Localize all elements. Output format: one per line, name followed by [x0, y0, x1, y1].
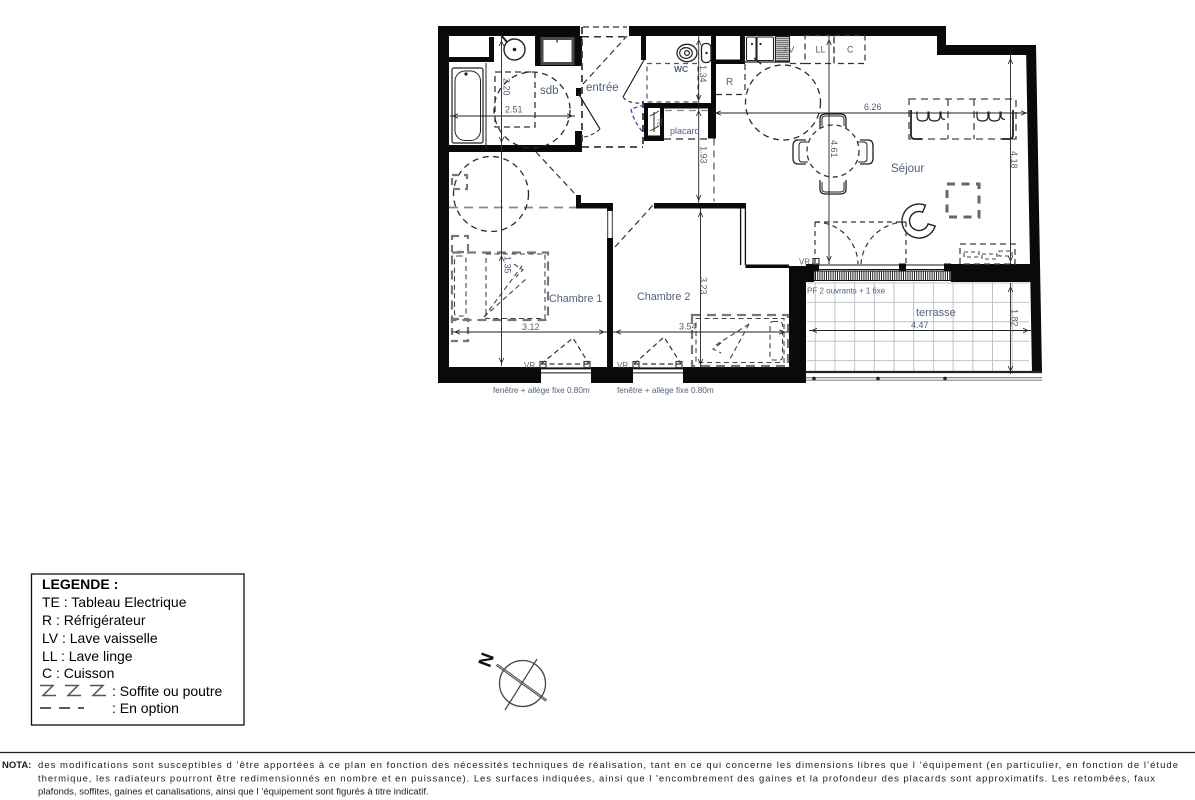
svg-text:1.82: 1.82 [1010, 309, 1020, 327]
svg-text:terrasse: terrasse [916, 307, 956, 319]
svg-text:3.12: 3.12 [522, 322, 540, 332]
svg-text:LV : Lave vaisselle: LV : Lave vaisselle [42, 630, 158, 646]
svg-text:fenêtre + allège fixe 0.80m: fenêtre + allège fixe 0.80m [617, 386, 714, 395]
svg-text:3.54: 3.54 [679, 322, 697, 332]
svg-text:VR: VR [799, 258, 810, 267]
svg-text:: En option: : En option [112, 700, 179, 716]
svg-text:4.61: 4.61 [829, 140, 839, 158]
svg-text:des modifications sont suscept: des modifications sont susceptibles d ’ê… [38, 760, 1178, 771]
svg-text:VR: VR [617, 361, 628, 370]
svg-text:Chambre 2: Chambre 2 [637, 291, 690, 303]
svg-text:4.18: 4.18 [1009, 151, 1019, 169]
svg-text:2.20: 2.20 [502, 78, 512, 96]
svg-text:1.93: 1.93 [699, 146, 709, 164]
svg-text:WC: WC [674, 64, 688, 74]
svg-text:C : Cuisson: C : Cuisson [42, 665, 114, 681]
svg-text:VR: VR [524, 361, 535, 370]
svg-text:LEGENDE :: LEGENDE : [42, 576, 118, 592]
svg-text:LL : Lave linge: LL : Lave linge [42, 648, 133, 664]
svg-text:NOTA:: NOTA: [2, 760, 31, 771]
svg-text:PF 2 ouvrants + 1 fixe: PF 2 ouvrants + 1 fixe [807, 287, 886, 296]
svg-text:C: C [847, 45, 854, 55]
svg-text:entrée: entrée [586, 82, 619, 94]
svg-text:3.23: 3.23 [699, 277, 709, 295]
svg-text:LV: LV [784, 45, 794, 55]
svg-text:2.51: 2.51 [505, 105, 523, 115]
svg-text:TE : Tableau Electrique: TE : Tableau Electrique [42, 594, 187, 610]
svg-text:Chambre 1: Chambre 1 [549, 293, 602, 305]
svg-text:placard: placard [670, 126, 700, 136]
svg-text:TE: TE [656, 118, 663, 127]
svg-text:R : Réfrigérateur: R : Réfrigérateur [42, 612, 146, 628]
svg-text:LL: LL [816, 45, 826, 55]
svg-text:fenêtre + allège fixe 0.80m: fenêtre + allège fixe 0.80m [493, 386, 590, 395]
svg-text:thermique, les radiateurs pour: thermique, les radiateurs pourront être … [38, 774, 1155, 785]
svg-text:6.26: 6.26 [864, 102, 882, 112]
svg-text:Séjour: Séjour [891, 163, 924, 175]
svg-text:4.47: 4.47 [911, 320, 929, 330]
svg-text:1.34: 1.34 [698, 65, 708, 83]
svg-text:: Soffite ou poutre: : Soffite ou poutre [112, 683, 222, 699]
svg-text:1.35: 1.35 [503, 256, 513, 274]
svg-text:sdb: sdb [540, 85, 559, 97]
svg-text:plafonds, soffites, gaines et: plafonds, soffites, gaines et canalisati… [38, 787, 429, 798]
svg-text:R: R [726, 77, 733, 88]
